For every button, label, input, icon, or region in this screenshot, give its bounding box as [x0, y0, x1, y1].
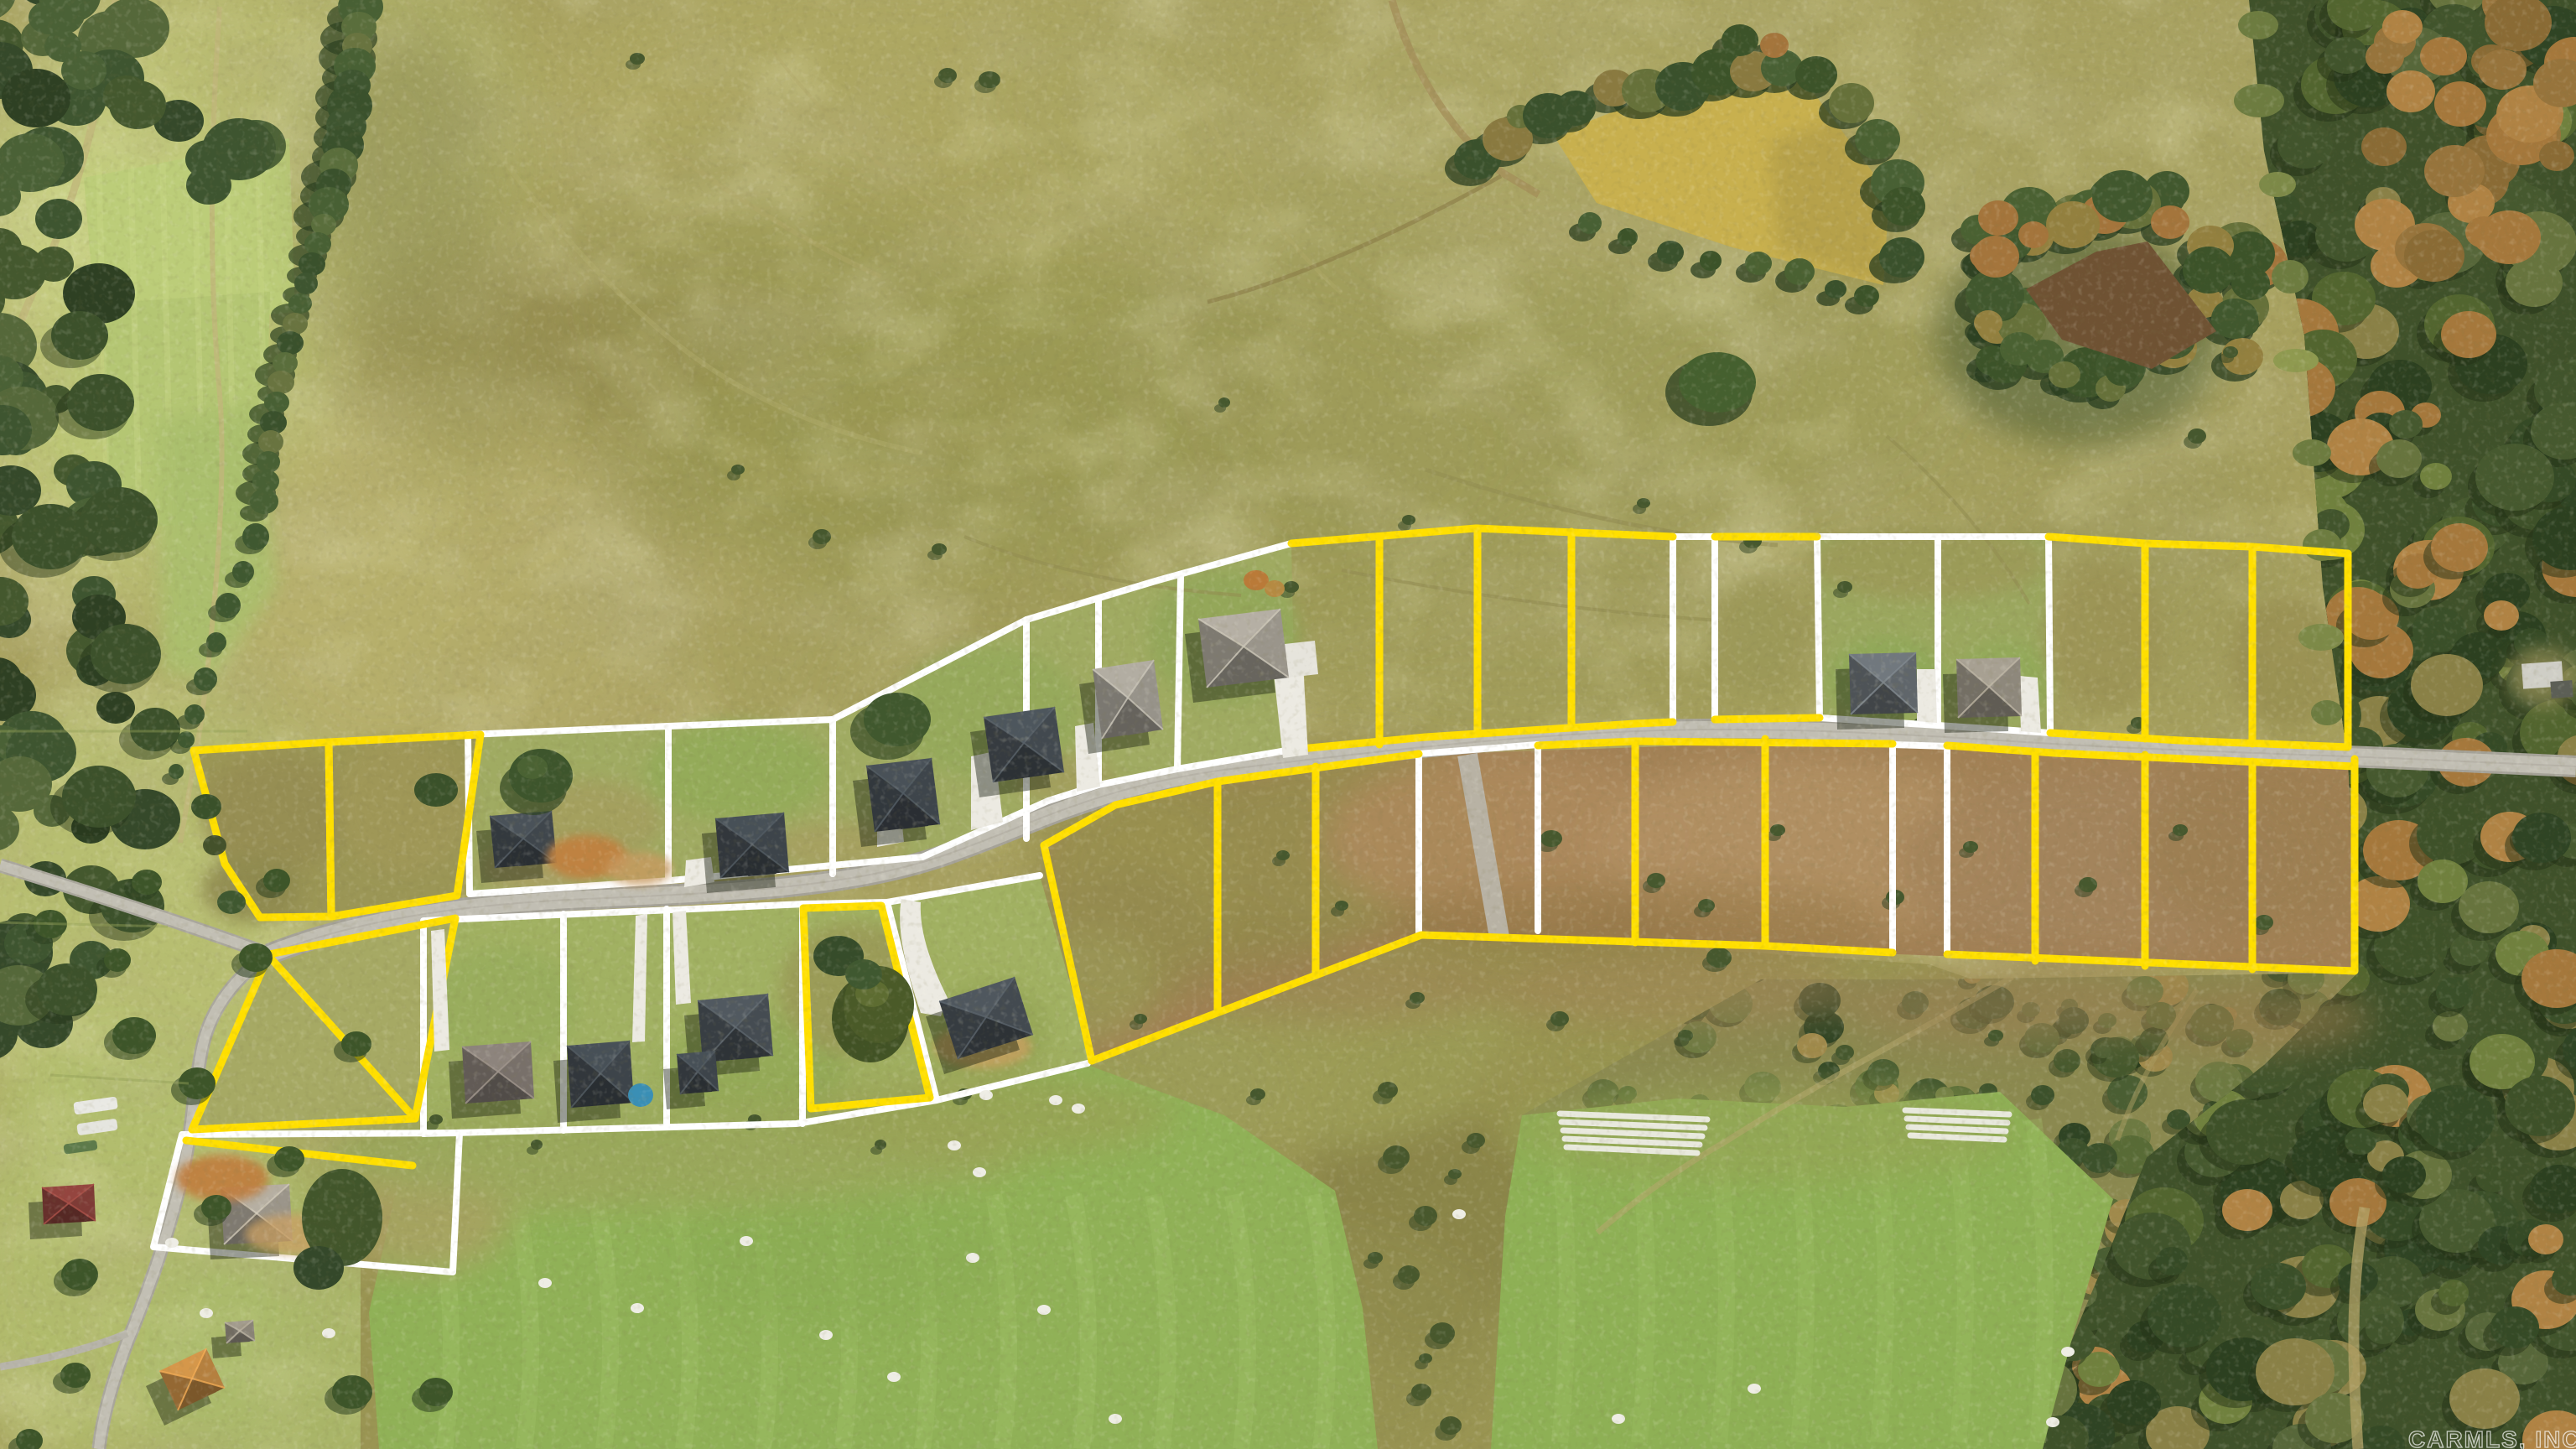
- svg-text:CARMLS, INC: CARMLS, INC: [2408, 1426, 2576, 1449]
